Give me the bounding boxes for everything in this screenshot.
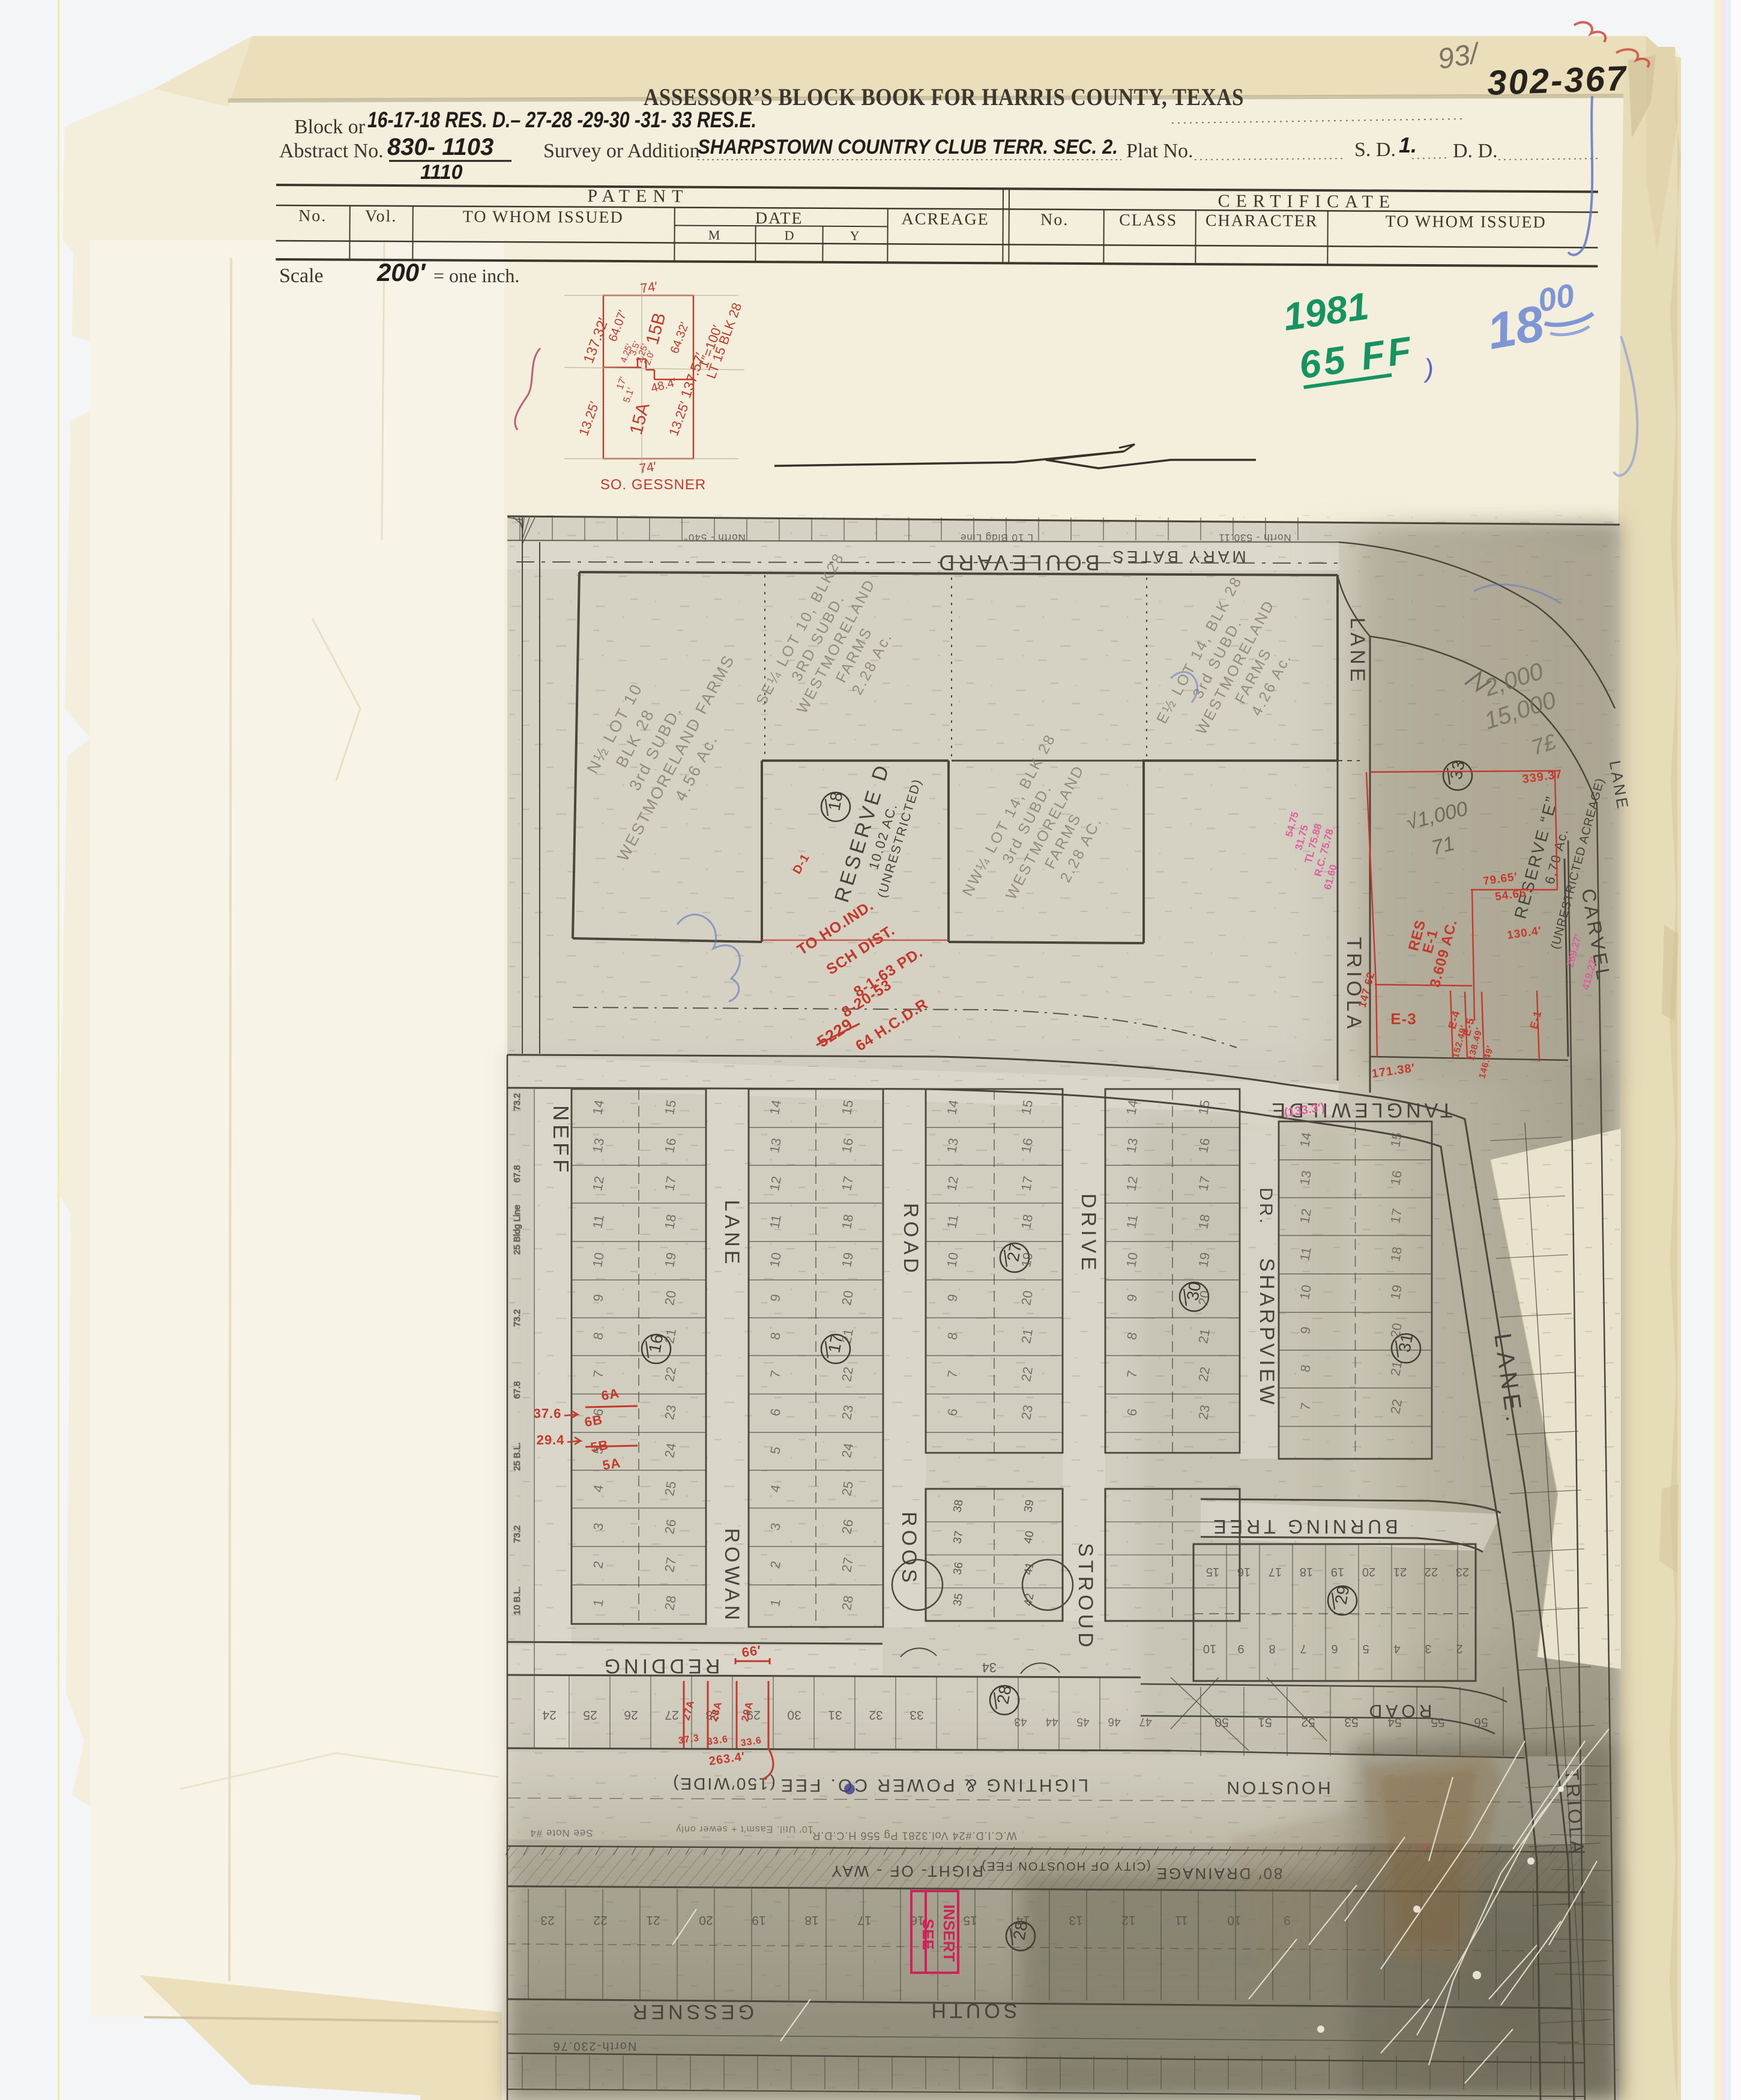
svg-text:24: 24 [542, 1708, 557, 1722]
svg-text:17: 17 [839, 1175, 856, 1192]
svg-text:54: 54 [1387, 1715, 1402, 1729]
svg-text:ACREAGE: ACREAGE [902, 210, 989, 229]
svg-text:2: 2 [1456, 1642, 1462, 1655]
svg-text:25: 25 [662, 1480, 679, 1497]
svg-text:16: 16 [1237, 1565, 1251, 1578]
svg-text:18: 18 [662, 1213, 679, 1230]
svg-text:5A: 5A [602, 1455, 622, 1473]
svg-text:21: 21 [646, 1913, 660, 1927]
svg-text:200′: 200′ [376, 258, 426, 286]
svg-text:23: 23 [839, 1404, 856, 1420]
svg-text:PATENT: PATENT [587, 186, 689, 207]
svg-text:18: 18 [1483, 295, 1548, 360]
svg-text:15: 15 [963, 1913, 977, 1927]
svg-text:19: 19 [1387, 1284, 1405, 1300]
svg-text:14: 14 [1123, 1099, 1141, 1115]
svg-text:TO WHOM ISSUED: TO WHOM ISSUED [463, 208, 624, 227]
svg-text:NEFF: NEFF [549, 1105, 573, 1176]
svg-text:DR.: DR. [1256, 1187, 1276, 1226]
svg-text:74′: 74′ [638, 459, 657, 476]
svg-text:12: 12 [1123, 1175, 1141, 1192]
svg-text:11: 11 [944, 1214, 961, 1230]
svg-text:16: 16 [1387, 1169, 1405, 1186]
svg-text:Vol.: Vol. [365, 207, 397, 226]
svg-text:20: 20 [839, 1290, 856, 1306]
svg-text:25 Bldg Line: 25 Bldg Line [512, 1205, 522, 1255]
svg-text:41: 41 [1022, 1561, 1036, 1575]
svg-text:830- 1103: 830- 1103 [387, 134, 493, 160]
svg-text:No.: No. [298, 207, 327, 225]
svg-text:22: 22 [662, 1366, 679, 1383]
svg-text:15: 15 [1018, 1099, 1036, 1115]
svg-text:17: 17 [1195, 1175, 1213, 1192]
svg-text:28: 28 [839, 1595, 856, 1611]
svg-text:Scale: Scale [279, 265, 324, 287]
svg-text:14: 14 [1016, 1913, 1030, 1927]
svg-text:29.4: 29.4 [537, 1432, 565, 1447]
svg-text:12: 12 [590, 1175, 607, 1192]
svg-text:29: 29 [1332, 1584, 1353, 1606]
svg-text:33: 33 [1447, 759, 1468, 781]
svg-text:17: 17 [857, 1913, 871, 1927]
svg-text:44: 44 [1045, 1715, 1058, 1728]
svg-text:17: 17 [1387, 1207, 1405, 1224]
svg-text:25: 25 [583, 1708, 597, 1722]
svg-text:D: D [785, 228, 794, 243]
svg-text:14: 14 [590, 1099, 607, 1115]
svg-text:(CITY OF HOUSTON FEE): (CITY OF HOUSTON FEE) [980, 1859, 1151, 1872]
svg-text:50: 50 [1214, 1715, 1228, 1729]
svg-text:13: 13 [944, 1137, 961, 1154]
svg-text:20: 20 [1195, 1290, 1213, 1306]
svg-text:56: 56 [1474, 1715, 1488, 1729]
svg-text:67.8: 67.8 [512, 1381, 522, 1399]
svg-text:21: 21 [1393, 1565, 1407, 1578]
svg-text:12: 12 [1297, 1207, 1314, 1224]
svg-text:10: 10 [1203, 1642, 1216, 1655]
svg-text:Block or: Block or [294, 116, 366, 138]
svg-text:11: 11 [1175, 1913, 1188, 1927]
svg-text:24: 24 [839, 1442, 856, 1459]
svg-text:55: 55 [1431, 1715, 1444, 1729]
svg-text:26: 26 [662, 1518, 679, 1535]
svg-text:16: 16 [1018, 1137, 1036, 1154]
svg-text:42: 42 [1022, 1592, 1036, 1607]
svg-text:16: 16 [839, 1137, 856, 1154]
svg-text:53: 53 [1344, 1715, 1358, 1729]
svg-text:40: 40 [1022, 1530, 1036, 1544]
svg-text:13: 13 [767, 1137, 784, 1154]
svg-text:18: 18 [804, 1913, 818, 1927]
svg-text:CHARACTER: CHARACTER [1205, 211, 1318, 231]
svg-text:18: 18 [825, 791, 846, 812]
svg-text:13: 13 [1069, 1913, 1082, 1927]
svg-text:10 B.L.: 10 B.L. [512, 1586, 522, 1615]
svg-text:SHARPVIEW: SHARPVIEW [1255, 1258, 1278, 1407]
svg-text:74′: 74′ [639, 279, 659, 296]
svg-text:14: 14 [1297, 1131, 1314, 1148]
svg-text:15: 15 [1195, 1099, 1213, 1115]
svg-text:D. D.: D. D. [1453, 140, 1498, 162]
svg-text:Survey or Addition: Survey or Addition [543, 140, 700, 162]
svg-text:ASSESSOR’S BLOCK BOOK FOR HARR: ASSESSOR’S BLOCK BOOK FOR HARRIS COUNTY,… [644, 83, 1244, 110]
svg-text:21: 21 [1018, 1327, 1036, 1344]
svg-text:27: 27 [662, 1556, 679, 1573]
svg-text:3: 3 [1425, 1642, 1431, 1655]
svg-text:20: 20 [1362, 1565, 1375, 1578]
svg-text:46: 46 [1108, 1715, 1120, 1728]
svg-text:52: 52 [1301, 1715, 1315, 1729]
svg-text:20: 20 [1018, 1290, 1036, 1306]
svg-text:10: 10 [1123, 1251, 1141, 1268]
svg-text:39: 39 [1022, 1498, 1036, 1513]
svg-text:18: 18 [1387, 1246, 1405, 1263]
svg-text:16: 16 [662, 1137, 679, 1154]
svg-text:20: 20 [699, 1913, 713, 1927]
svg-text:CLASS: CLASS [1119, 211, 1177, 230]
svg-text:23: 23 [662, 1404, 679, 1420]
svg-text:30: 30 [787, 1708, 801, 1722]
svg-text:SHARPSTOWN COUNTRY CLUB TERR.: SHARPSTOWN COUNTRY CLUB TERR. SEC. 2. [698, 136, 1118, 158]
svg-text:No.: No. [1040, 211, 1069, 229]
svg-text:21: 21 [839, 1327, 856, 1344]
svg-text:14: 14 [944, 1099, 961, 1115]
svg-text:17: 17 [662, 1175, 679, 1192]
svg-text:4: 4 [1393, 1642, 1400, 1655]
svg-text:7: 7 [1300, 1642, 1306, 1655]
svg-text:21: 21 [662, 1327, 679, 1344]
svg-text:GESSNER: GESSNER [629, 2000, 754, 2023]
svg-text:6B: 6B [584, 1412, 604, 1430]
svg-text:21: 21 [1387, 1360, 1405, 1377]
svg-text:North-230.76: North-230.76 [552, 2039, 637, 2053]
svg-text:51: 51 [1258, 1715, 1272, 1729]
svg-text:BURNING TREE: BURNING TREE [1210, 1516, 1398, 1537]
svg-text:13: 13 [1123, 1137, 1141, 1154]
svg-text:13: 13 [1297, 1169, 1314, 1186]
svg-text:37: 37 [951, 1530, 965, 1544]
svg-text:LANE: LANE [720, 1200, 743, 1268]
svg-text:= one inch.: = one inch. [433, 265, 519, 286]
svg-text:15: 15 [662, 1099, 679, 1115]
svg-text:47: 47 [1139, 1715, 1151, 1728]
svg-text:93/: 93/ [1435, 37, 1483, 76]
svg-text:Abstract No.: Abstract No. [279, 140, 384, 162]
svg-text:North - 530.11: North - 530.11 [1218, 532, 1291, 543]
svg-text:10: 10 [590, 1251, 607, 1268]
svg-text:HOUSTON: HOUSTON [1224, 1778, 1330, 1797]
svg-text:32: 32 [869, 1708, 883, 1722]
svg-text:28: 28 [662, 1595, 679, 1611]
svg-text:12: 12 [767, 1175, 784, 1192]
svg-text:RIGHT- OF - WAY: RIGHT- OF - WAY [830, 1862, 983, 1880]
svg-text:ROAD: ROAD [899, 1203, 922, 1276]
svg-text:11: 11 [590, 1214, 607, 1230]
svg-text:1.: 1. [1399, 133, 1417, 157]
svg-text:36: 36 [951, 1561, 965, 1575]
svg-text:17: 17 [1018, 1175, 1036, 1192]
svg-text:23: 23 [1456, 1565, 1469, 1578]
svg-text:26: 26 [624, 1708, 638, 1722]
svg-text:22: 22 [1018, 1366, 1036, 1383]
svg-text:LIGHTING & POWER CO. FEE: LIGHTING & POWER CO. FEE [779, 1775, 1088, 1795]
svg-text:STROUD: STROUD [1074, 1543, 1097, 1651]
svg-text:SO. GESSNER: SO. GESSNER [600, 477, 706, 493]
svg-text:18: 18 [1300, 1565, 1313, 1578]
svg-text:11: 11 [1123, 1214, 1141, 1230]
svg-text:12: 12 [1121, 1913, 1135, 1927]
svg-text:28: 28 [994, 1684, 1015, 1706]
svg-text:67.8: 67.8 [512, 1165, 522, 1183]
svg-text:SEE: SEE [919, 1919, 937, 1950]
svg-text:22: 22 [593, 1913, 607, 1927]
svg-text:38: 38 [951, 1498, 965, 1513]
svg-text:73.2: 73.2 [512, 1309, 522, 1327]
svg-text:ROWAN: ROWAN [720, 1528, 743, 1623]
svg-text:00: 00 [1535, 277, 1577, 319]
svg-text:SOUTH: SOUTH [928, 1999, 1018, 2022]
svg-text:North - 540°: North - 540° [683, 532, 746, 543]
svg-text:302-367: 302-367 [1486, 59, 1628, 103]
svg-text:S. D.: S. D. [1354, 139, 1396, 161]
svg-text:15: 15 [1387, 1131, 1405, 1148]
svg-text:MARY BATES: MARY BATES [1109, 548, 1246, 566]
svg-text:22: 22 [1425, 1565, 1438, 1578]
svg-text:18: 18 [1018, 1213, 1036, 1230]
svg-text:CERTIFICATE: CERTIFICATE [1218, 191, 1396, 212]
svg-text:16: 16 [1195, 1137, 1213, 1154]
svg-text:73.2: 73.2 [512, 1525, 522, 1543]
svg-text:(150′WIDE): (150′WIDE) [671, 1775, 776, 1793]
svg-text:5: 5 [1362, 1642, 1369, 1655]
svg-text:19: 19 [1018, 1251, 1036, 1268]
svg-text:20: 20 [662, 1290, 679, 1306]
svg-text:Y: Y [850, 228, 860, 243]
svg-text:11: 11 [1297, 1246, 1314, 1263]
svg-text:Plat No.: Plat No. [1126, 140, 1193, 162]
svg-text:33: 33 [910, 1708, 923, 1722]
svg-text:20: 20 [1387, 1322, 1405, 1339]
svg-text:37.6: 37.6 [534, 1406, 562, 1421]
svg-text:15: 15 [839, 1099, 856, 1115]
svg-text:INSERT: INSERT [940, 1904, 958, 1961]
svg-text:10: 10 [944, 1251, 961, 1268]
svg-text:26: 26 [839, 1518, 856, 1535]
svg-text:24: 24 [662, 1442, 679, 1459]
svg-text:31: 31 [828, 1708, 842, 1722]
svg-text:22: 22 [1387, 1398, 1405, 1415]
svg-text:25: 25 [839, 1480, 856, 1497]
svg-text:23: 23 [540, 1913, 554, 1927]
svg-text:BOULEVARD: BOULEVARD [935, 551, 1099, 575]
svg-text:11: 11 [767, 1214, 784, 1230]
svg-text:6A: 6A [600, 1386, 621, 1404]
svg-text:22: 22 [1195, 1366, 1213, 1383]
svg-text:14: 14 [767, 1099, 784, 1115]
svg-text:18: 18 [839, 1213, 856, 1230]
svg-text:M: M [708, 228, 720, 243]
svg-text:REDDING: REDDING [601, 1655, 720, 1677]
svg-text:35: 35 [951, 1592, 965, 1607]
svg-text:See Note #4: See Note #4 [530, 1827, 593, 1839]
svg-text:E-3: E-3 [1390, 1010, 1416, 1028]
svg-text:19: 19 [1331, 1565, 1344, 1578]
svg-text:66′: 66′ [741, 1643, 762, 1660]
svg-text:45: 45 [1076, 1715, 1089, 1728]
svg-text:5B: 5B [590, 1437, 610, 1455]
svg-text:25 B.L.: 25 B.L. [512, 1442, 522, 1471]
svg-text:19: 19 [662, 1251, 679, 1268]
svg-text:19: 19 [839, 1251, 856, 1268]
svg-text:TO WHOM ISSUED: TO WHOM ISSUED [1386, 213, 1546, 232]
svg-text:73.2: 73.2 [512, 1093, 522, 1111]
svg-text:6: 6 [1331, 1642, 1338, 1655]
svg-text:10: 10 [1297, 1284, 1314, 1300]
svg-text:15: 15 [1206, 1565, 1219, 1578]
svg-text:27: 27 [839, 1556, 856, 1573]
svg-text:34: 34 [982, 1660, 997, 1675]
svg-text:21: 21 [1195, 1327, 1213, 1344]
svg-text:LANE: LANE [1346, 618, 1369, 686]
svg-text:43: 43 [1014, 1715, 1027, 1728]
svg-text:17: 17 [1269, 1565, 1282, 1578]
svg-text:13: 13 [590, 1137, 607, 1154]
svg-text:27: 27 [665, 1708, 678, 1722]
svg-text:9: 9 [1237, 1642, 1244, 1655]
svg-text:1110: 1110 [420, 161, 463, 184]
svg-text:DATE: DATE [755, 209, 803, 228]
svg-text:23: 23 [1018, 1404, 1036, 1420]
svg-text:12: 12 [944, 1175, 961, 1192]
svg-text:W.C.I.D.#24 Vol.3281 Pg 556: W.C.I.D.#24 Vol.3281 Pg 556 H.C.D.R. [808, 1830, 1016, 1842]
svg-text:19: 19 [1195, 1251, 1213, 1268]
svg-text:16-17-18 RES. D.– 27-28 -29-30: 16-17-18 RES. D.– 27-28 -29-30 -31- 33 R… [367, 107, 756, 132]
svg-text:19: 19 [752, 1913, 765, 1927]
svg-text:10: 10 [767, 1251, 784, 1268]
svg-text:ROOS: ROOS [898, 1512, 920, 1586]
svg-text:23: 23 [1195, 1404, 1213, 1420]
svg-text:18: 18 [1195, 1213, 1213, 1230]
svg-text:8: 8 [1269, 1642, 1275, 1655]
svg-text:22: 22 [839, 1366, 856, 1383]
svg-text:10: 10 [1227, 1913, 1241, 1927]
svg-text:10′ Util. Easm′t + sewer only: 10′ Util. Easm′t + sewer only [675, 1824, 813, 1834]
svg-text:L 10 Bldg Line: L 10 Bldg Line [960, 532, 1033, 543]
svg-text:DRIVE: DRIVE [1077, 1193, 1100, 1274]
